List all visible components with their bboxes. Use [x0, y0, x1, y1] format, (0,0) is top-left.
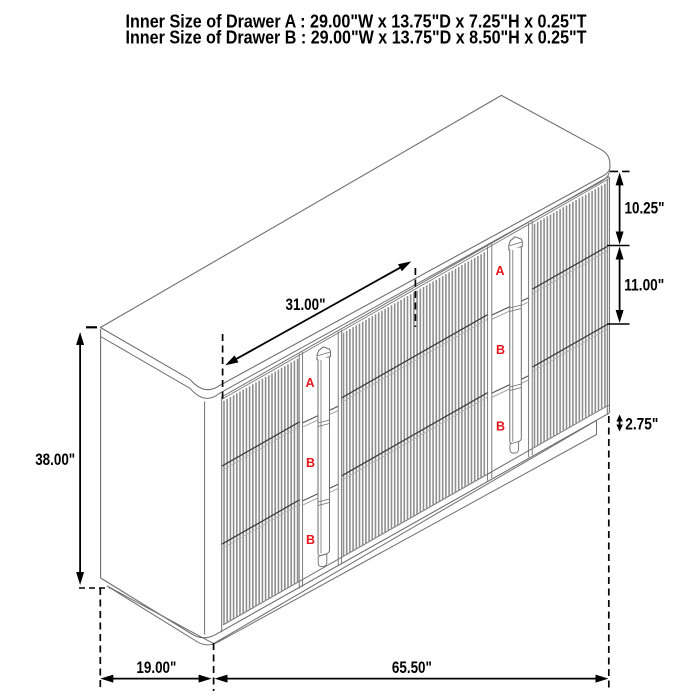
svg-text:B: B [496, 420, 505, 434]
svg-text:10.25": 10.25" [625, 199, 665, 218]
svg-text:B: B [306, 456, 315, 470]
svg-text:A: A [495, 264, 504, 278]
svg-text:2.75": 2.75" [625, 415, 658, 434]
svg-text:Inner Size of Drawer B : 29.00: Inner Size of Drawer B : 29.00"W x 13.75… [126, 27, 588, 48]
svg-text:31.00": 31.00" [286, 295, 326, 314]
svg-text:38.00": 38.00" [35, 450, 75, 469]
svg-text:19.00": 19.00" [136, 658, 176, 677]
svg-text:B: B [496, 343, 505, 357]
svg-text:B: B [306, 533, 315, 547]
svg-text:11.00": 11.00" [624, 275, 664, 294]
svg-text:A: A [305, 376, 314, 390]
svg-text:65.50": 65.50" [392, 658, 432, 677]
